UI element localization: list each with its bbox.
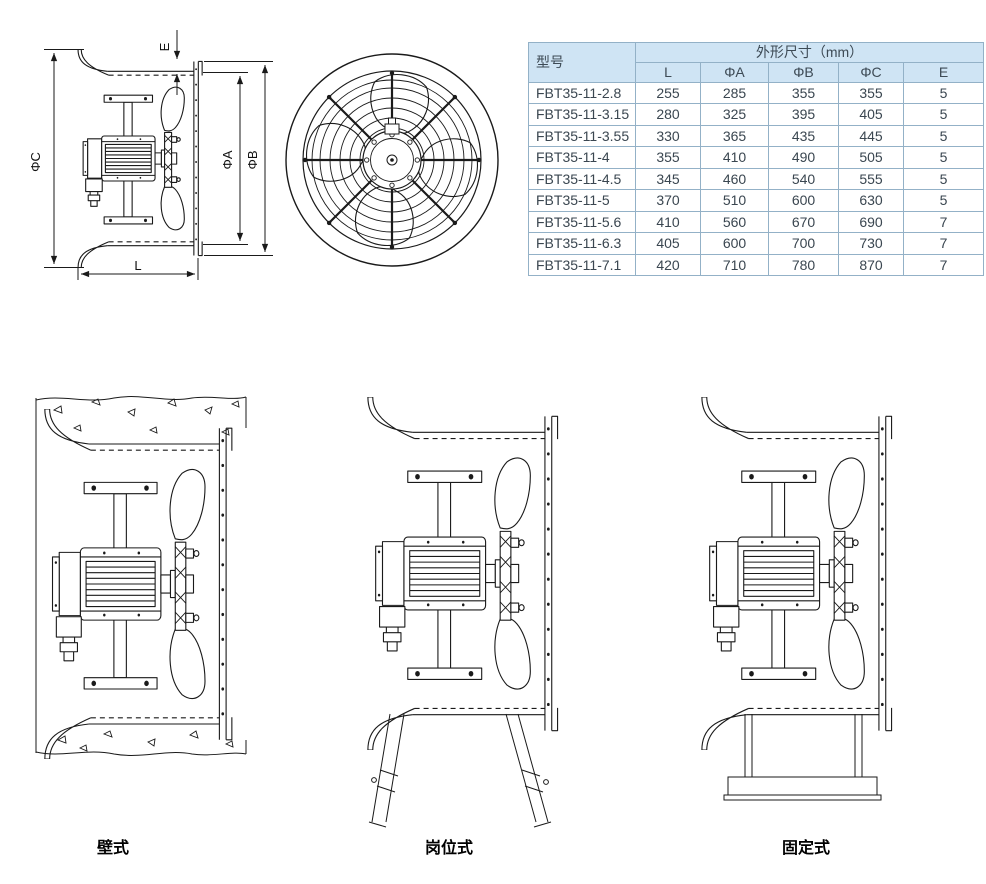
model-cell: FBT35-11-5.6 (529, 211, 636, 233)
value-cell: 540 (769, 168, 839, 190)
value-cell: 435 (769, 125, 839, 147)
value-cell: 345 (636, 168, 701, 190)
value-cell: 7 (904, 211, 984, 233)
table-row: FBT35-11-6.3 405 600 700 730 7 (529, 233, 984, 255)
dim-label-e: E (157, 42, 172, 51)
caption-wall-type: 壁式 (97, 838, 129, 857)
value-cell: 510 (701, 190, 769, 212)
dim-label-phi-a: ΦA (220, 150, 235, 169)
value-cell: 405 (839, 104, 904, 126)
stand-legs (369, 714, 551, 827)
col-header-e: E (904, 63, 984, 83)
value-cell: 600 (769, 190, 839, 212)
model-cell: FBT35-11-2.8 (529, 82, 636, 104)
value-cell: 410 (636, 211, 701, 233)
col-header-phi-a: ΦA (701, 63, 769, 83)
value-cell: 730 (839, 233, 904, 255)
model-cell: FBT35-11-7.1 (529, 254, 636, 276)
value-cell: 600 (701, 233, 769, 255)
value-cell: 670 (769, 211, 839, 233)
dim-label-l: L (134, 258, 141, 273)
dimensions-table: 型号 外形尺寸（mm） L ΦA ΦB ΦC E FBT35-11-2.8 25… (528, 42, 984, 276)
value-cell: 630 (839, 190, 904, 212)
value-cell: 780 (769, 254, 839, 276)
table-row: FBT35-11-7.1 420 710 780 870 7 (529, 254, 984, 276)
caption-fixed-type: 固定式 (782, 838, 830, 857)
table-row: FBT35-11-3.15 280 325 395 405 5 (529, 104, 984, 126)
value-cell: 355 (769, 82, 839, 104)
table-row: FBT35-11-4.5 345 460 540 555 5 (529, 168, 984, 190)
value-cell: 555 (839, 168, 904, 190)
table-row: FBT35-11-2.8 255 285 355 355 5 (529, 82, 984, 104)
value-cell: 710 (701, 254, 769, 276)
model-cell: FBT35-11-6.3 (529, 233, 636, 255)
value-cell: 5 (904, 147, 984, 169)
col-header-model: 型号 (529, 43, 636, 83)
model-cell: FBT35-11-3.55 (529, 125, 636, 147)
value-cell: 395 (769, 104, 839, 126)
value-cell: 405 (636, 233, 701, 255)
value-cell: 7 (904, 254, 984, 276)
model-cell: FBT35-11-5 (529, 190, 636, 212)
value-cell: 5 (904, 104, 984, 126)
model-cell: FBT35-11-4.5 (529, 168, 636, 190)
model-cell: FBT35-11-4 (529, 147, 636, 169)
dim-label-phi-c: ΦC (28, 152, 43, 172)
value-cell: 700 (769, 233, 839, 255)
value-cell: 460 (701, 168, 769, 190)
col-header-phi-b: ΦB (769, 63, 839, 83)
value-cell: 490 (769, 147, 839, 169)
value-cell: 870 (839, 254, 904, 276)
table-row: FBT35-11-3.55 330 365 435 445 5 (529, 125, 984, 147)
fan-catalog-page: ΦC E ΦA ΦB L (0, 0, 986, 884)
value-cell: 280 (636, 104, 701, 126)
value-cell: 560 (701, 211, 769, 233)
stand-mount-drawing (368, 397, 558, 827)
value-cell: 355 (636, 147, 701, 169)
col-header-l: L (636, 63, 701, 83)
side-view-drawing: ΦC E ΦA ΦB L (28, 30, 273, 280)
value-cell: 370 (636, 190, 701, 212)
value-cell: 325 (701, 104, 769, 126)
col-header-dims: 外形尺寸（mm） (636, 43, 984, 63)
table-row: FBT35-11-5 370 510 600 630 5 (529, 190, 984, 212)
pedestal (724, 714, 881, 800)
value-cell: 410 (701, 147, 769, 169)
model-cell: FBT35-11-3.15 (529, 104, 636, 126)
value-cell: 5 (904, 82, 984, 104)
fixed-mount-drawing (702, 397, 892, 800)
col-header-phi-c: ΦC (839, 63, 904, 83)
value-cell: 690 (839, 211, 904, 233)
value-cell: 505 (839, 147, 904, 169)
value-cell: 7 (904, 233, 984, 255)
value-cell: 420 (636, 254, 701, 276)
value-cell: 285 (701, 82, 769, 104)
value-cell: 355 (839, 82, 904, 104)
value-cell: 5 (904, 190, 984, 212)
front-view-drawing (286, 54, 498, 266)
table-row: FBT35-11-4 355 410 490 505 5 (529, 147, 984, 169)
table-row: FBT35-11-5.6 410 560 670 690 7 (529, 211, 984, 233)
value-cell: 330 (636, 125, 701, 147)
value-cell: 5 (904, 125, 984, 147)
value-cell: 365 (701, 125, 769, 147)
value-cell: 255 (636, 82, 701, 104)
caption-stand-type: 岗位式 (425, 838, 473, 857)
value-cell: 445 (839, 125, 904, 147)
value-cell: 5 (904, 168, 984, 190)
wall-mount-drawing (36, 397, 246, 759)
dim-label-phi-b: ΦB (245, 150, 260, 169)
